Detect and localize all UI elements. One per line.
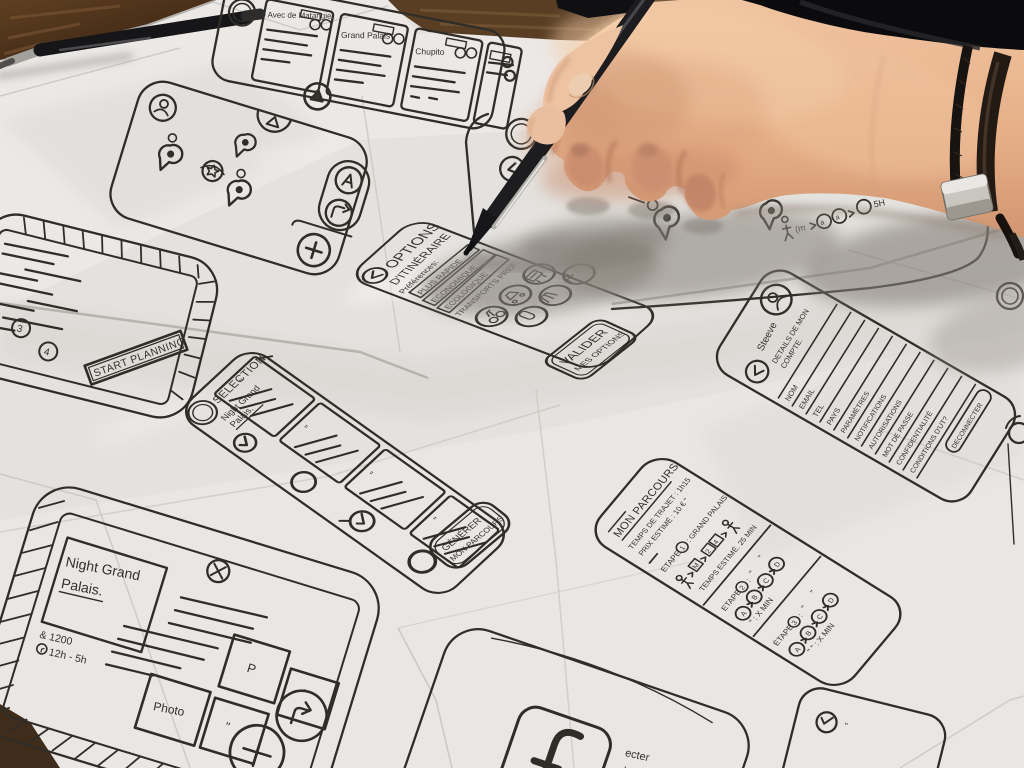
svg-text:Chupito: Chupito (415, 46, 445, 57)
